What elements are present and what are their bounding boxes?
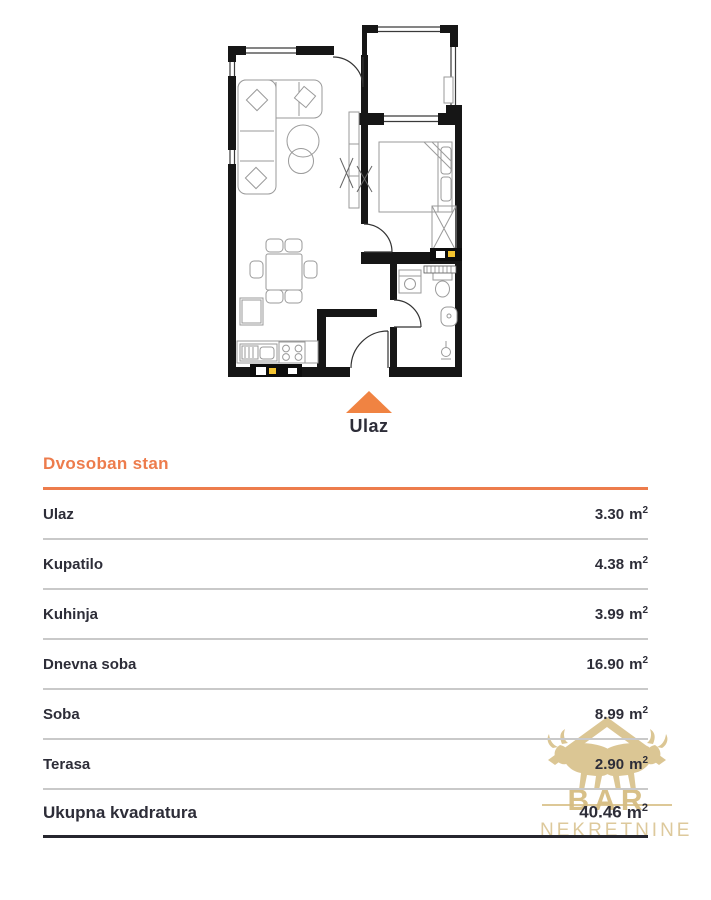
room-name: Ulaz (43, 506, 74, 523)
entrance-label: Ulaz (329, 416, 409, 437)
table-row: Terasa 2.90m2 (43, 740, 648, 790)
room-name: Terasa (43, 756, 90, 773)
room-area: 4.38m2 (595, 555, 648, 573)
vent-strip (424, 266, 456, 273)
table-row: Kupatilo 4.38m2 (43, 540, 648, 590)
room-area: 3.99m2 (595, 605, 648, 623)
table-row: Kuhinja 3.99m2 (43, 590, 648, 640)
table-row: Soba 8.99m2 (43, 690, 648, 740)
table-row: Ulaz 3.30m2 (43, 490, 648, 540)
apartment-type-title: Dvosoban stan (43, 454, 648, 474)
room-name: Kupatilo (43, 556, 103, 573)
entrance-arrow-icon (346, 391, 392, 413)
room-name: Soba (43, 706, 80, 723)
room-area: 16.90m2 (587, 655, 648, 673)
room-area: 8.99m2 (595, 705, 648, 723)
total-label: Ukupna kvadratura (43, 803, 197, 823)
floor-plan (224, 14, 467, 444)
floor-plan-page: Ulaz (0, 0, 711, 900)
room-area: 3.30m2 (595, 505, 648, 523)
total-row: Ukupna kvadratura 40.46m2 (43, 790, 648, 838)
room-name: Kuhinja (43, 606, 98, 623)
floor-plan-drawing (224, 14, 467, 444)
table-row: Dnevna soba 16.90m2 (43, 640, 648, 690)
room-name: Dnevna soba (43, 656, 136, 673)
room-area: 2.90m2 (595, 755, 648, 773)
total-area: 40.46m2 (579, 802, 648, 823)
area-table: Dvosoban stan Ulaz 3.30m2 Kupatilo 4.38m… (43, 454, 648, 838)
